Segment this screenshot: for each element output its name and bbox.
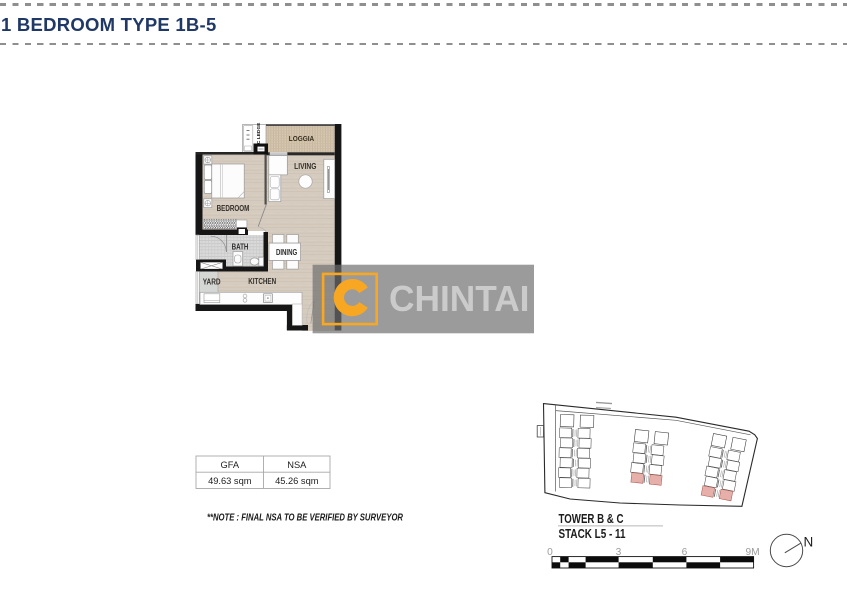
svg-text:LIVING: LIVING (294, 161, 317, 171)
svg-text:3: 3 (616, 547, 622, 558)
svg-text:STACK L5 - 11: STACK L5 - 11 (559, 527, 626, 541)
svg-text:BATH: BATH (232, 243, 249, 252)
svg-text:0: 0 (547, 547, 553, 558)
svg-text:9M: 9M (746, 547, 760, 558)
svg-text:N: N (804, 535, 814, 550)
svg-text:NSA: NSA (287, 460, 307, 470)
svg-text:TOWER B & C: TOWER B & C (559, 512, 624, 526)
svg-text:DINING: DINING (276, 248, 297, 257)
svg-text:6: 6 (682, 547, 688, 558)
svg-text:GFA: GFA (220, 460, 239, 470)
svg-text:CHINTAI: CHINTAI (389, 278, 530, 319)
svg-text:45.26 sqm: 45.26 sqm (275, 476, 319, 486)
svg-text:**NOTE : FINAL NSA TO BE VERIF: **NOTE : FINAL NSA TO BE VERIFIED BY SUR… (207, 513, 403, 524)
svg-text:LOGGIA: LOGGIA (289, 134, 315, 143)
svg-text:YARD: YARD (203, 276, 221, 286)
svg-text:KITCHEN: KITCHEN (248, 276, 276, 286)
svg-text:49.63 sqm: 49.63 sqm (208, 476, 252, 486)
svg-text:BEDROOM: BEDROOM (217, 203, 250, 213)
